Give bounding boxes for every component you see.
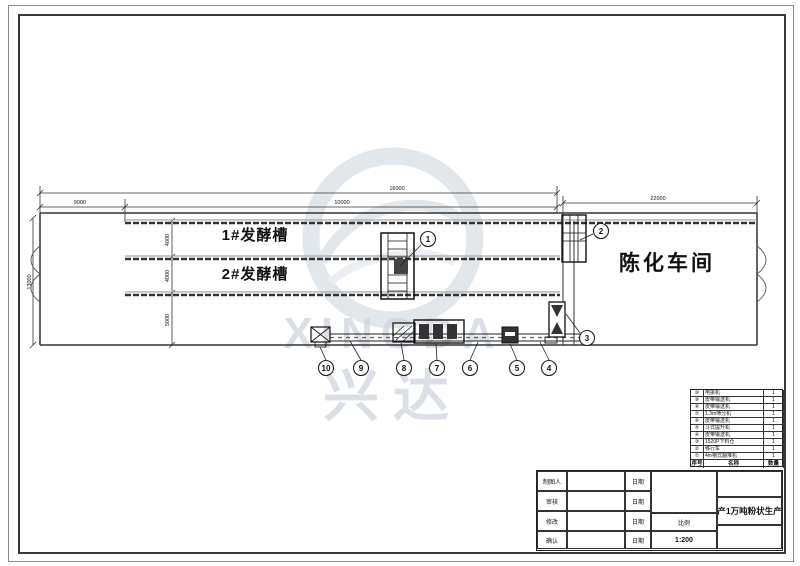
callout-7: 7 <box>435 364 440 373</box>
parts-header-name: 名称 <box>704 460 764 468</box>
callout-2: 2 <box>599 227 604 236</box>
parts-row-name: 移行车 <box>704 446 764 453</box>
parts-row-name: 皮带输送机 <box>704 397 764 404</box>
title-block-right-bottom <box>717 525 782 549</box>
parts-row-qty: 1 <box>764 411 784 418</box>
callout-4: 4 <box>547 364 552 373</box>
parts-row-name: 电振机 <box>704 390 764 397</box>
title-block-scale-label: 比例 <box>651 513 717 531</box>
parts-row-no: ⑧ <box>691 404 704 411</box>
dim-seg3: 5000 <box>165 314 171 326</box>
right-door-swing <box>757 246 766 302</box>
title-block-row1-label: 制图人 <box>537 471 567 491</box>
callout-5: 5 <box>515 364 520 373</box>
parts-row-name: 1520P下料仓 <box>704 439 764 446</box>
title-block-row3-value <box>567 511 625 531</box>
title-block-row3-date-label: 日期 <box>625 511 651 531</box>
title-block: 制图人 日期 审核 日期 修改 日期 确认 日期 比例 1:200 年产1万吨粉… <box>536 470 783 551</box>
parts-row-qty: 1 <box>764 390 784 397</box>
watermark-brand-cn-text: 兴达 <box>323 365 463 428</box>
title-block-row2-label: 审核 <box>537 491 567 511</box>
parts-row-name: 1.3m筛分机 <box>704 411 764 418</box>
parts-row-no: ④ <box>691 432 704 439</box>
equipment-elevator <box>545 302 565 343</box>
parts-row-no: ⑤ <box>691 425 704 432</box>
parts-row-qty: 1 <box>764 418 784 425</box>
parts-header-qty: 数量 <box>764 460 784 468</box>
title-block-row2-date-label: 日期 <box>625 491 651 511</box>
dim-top-left: 9000 <box>74 200 86 206</box>
parts-row-name: 皮带输送机 <box>704 432 764 439</box>
dim-top-right: 22000 <box>650 196 665 202</box>
parts-row-name: 4m槽式翻堆机 <box>704 453 764 460</box>
title-block-scale-value: 1:200 <box>651 531 717 549</box>
parts-row-no: ② <box>691 446 704 453</box>
parts-row-qty: 1 <box>764 439 784 446</box>
callout-3: 3 <box>585 334 590 343</box>
dim-seg2: 4000 <box>165 270 171 282</box>
trough1-label: 1#发酵槽 <box>195 224 315 245</box>
callout-9: 9 <box>359 364 364 373</box>
title-block-right-top <box>717 471 782 497</box>
parts-row-qty: 1 <box>764 446 784 453</box>
title-block-row4-label: 确认 <box>537 531 567 549</box>
parts-row-no: ⑨ <box>691 397 704 404</box>
trough2-label: 2#发酵槽 <box>195 263 315 284</box>
callout-6: 6 <box>468 364 473 373</box>
left-door-swing <box>31 246 40 302</box>
title-block-row3-label: 修改 <box>537 511 567 531</box>
parts-row-name: 皮带输送机 <box>704 404 764 411</box>
title-block-row1-value <box>567 471 625 491</box>
aging-room-label: 陈化车间 <box>597 247 737 277</box>
equipment-box-5 <box>502 327 518 343</box>
parts-row-qty: 1 <box>764 397 784 404</box>
equipment-turner <box>381 233 414 299</box>
dim-left-height: 13000 <box>27 274 33 289</box>
dim-top-overall: 16000 <box>389 186 404 192</box>
title-block-row4-date-label: 日期 <box>625 531 651 549</box>
callout-10: 10 <box>322 364 331 373</box>
callout-1: 1 <box>426 235 431 244</box>
parts-row-name: 斗式提升机 <box>704 425 764 432</box>
parts-row-no: ⑦ <box>691 411 704 418</box>
parts-row-qty: 1 <box>764 453 784 460</box>
drawing-title: 年产1万吨粉状生产线 <box>717 497 782 525</box>
parts-row-no: ⑥ <box>691 418 704 425</box>
dim-seg1: 4000 <box>165 234 171 246</box>
drawing-sheet: XINGDA 兴达 16000 9000 <box>0 0 800 566</box>
title-block-row1-date-label: 日期 <box>625 471 651 491</box>
parts-row-no: ⑩ <box>691 390 704 397</box>
parts-table: ⑩ 电振机 1 ⑨ 皮带输送机 1 ⑧ 皮带输送机 1 ⑦ 1.3m筛分机 1 … <box>690 389 783 467</box>
title-block-row4-value <box>567 531 625 549</box>
parts-row-qty: 1 <box>764 425 784 432</box>
parts-header-no: 序号 <box>691 460 704 468</box>
title-block-middle-blank <box>651 471 717 513</box>
title-block-row2-value <box>567 491 625 511</box>
parts-row-no: ③ <box>691 439 704 446</box>
callout-8: 8 <box>402 364 407 373</box>
parts-row-no: ① <box>691 453 704 460</box>
parts-row-qty: 1 <box>764 404 784 411</box>
parts-row-qty: 1 <box>764 432 784 439</box>
parts-row-name: 皮带输送机 <box>704 418 764 425</box>
dim-top-mid: 10000 <box>334 200 349 206</box>
